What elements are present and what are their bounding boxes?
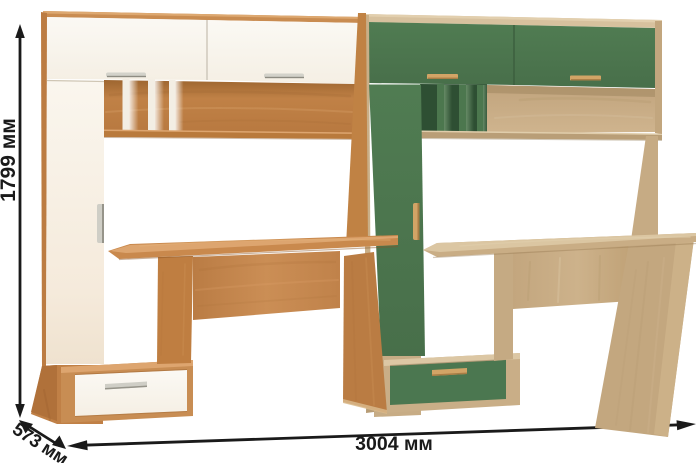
svg-text:3004 мм: 3004 мм [355,433,433,455]
svg-text:1799 мм: 1799 мм [0,118,20,202]
